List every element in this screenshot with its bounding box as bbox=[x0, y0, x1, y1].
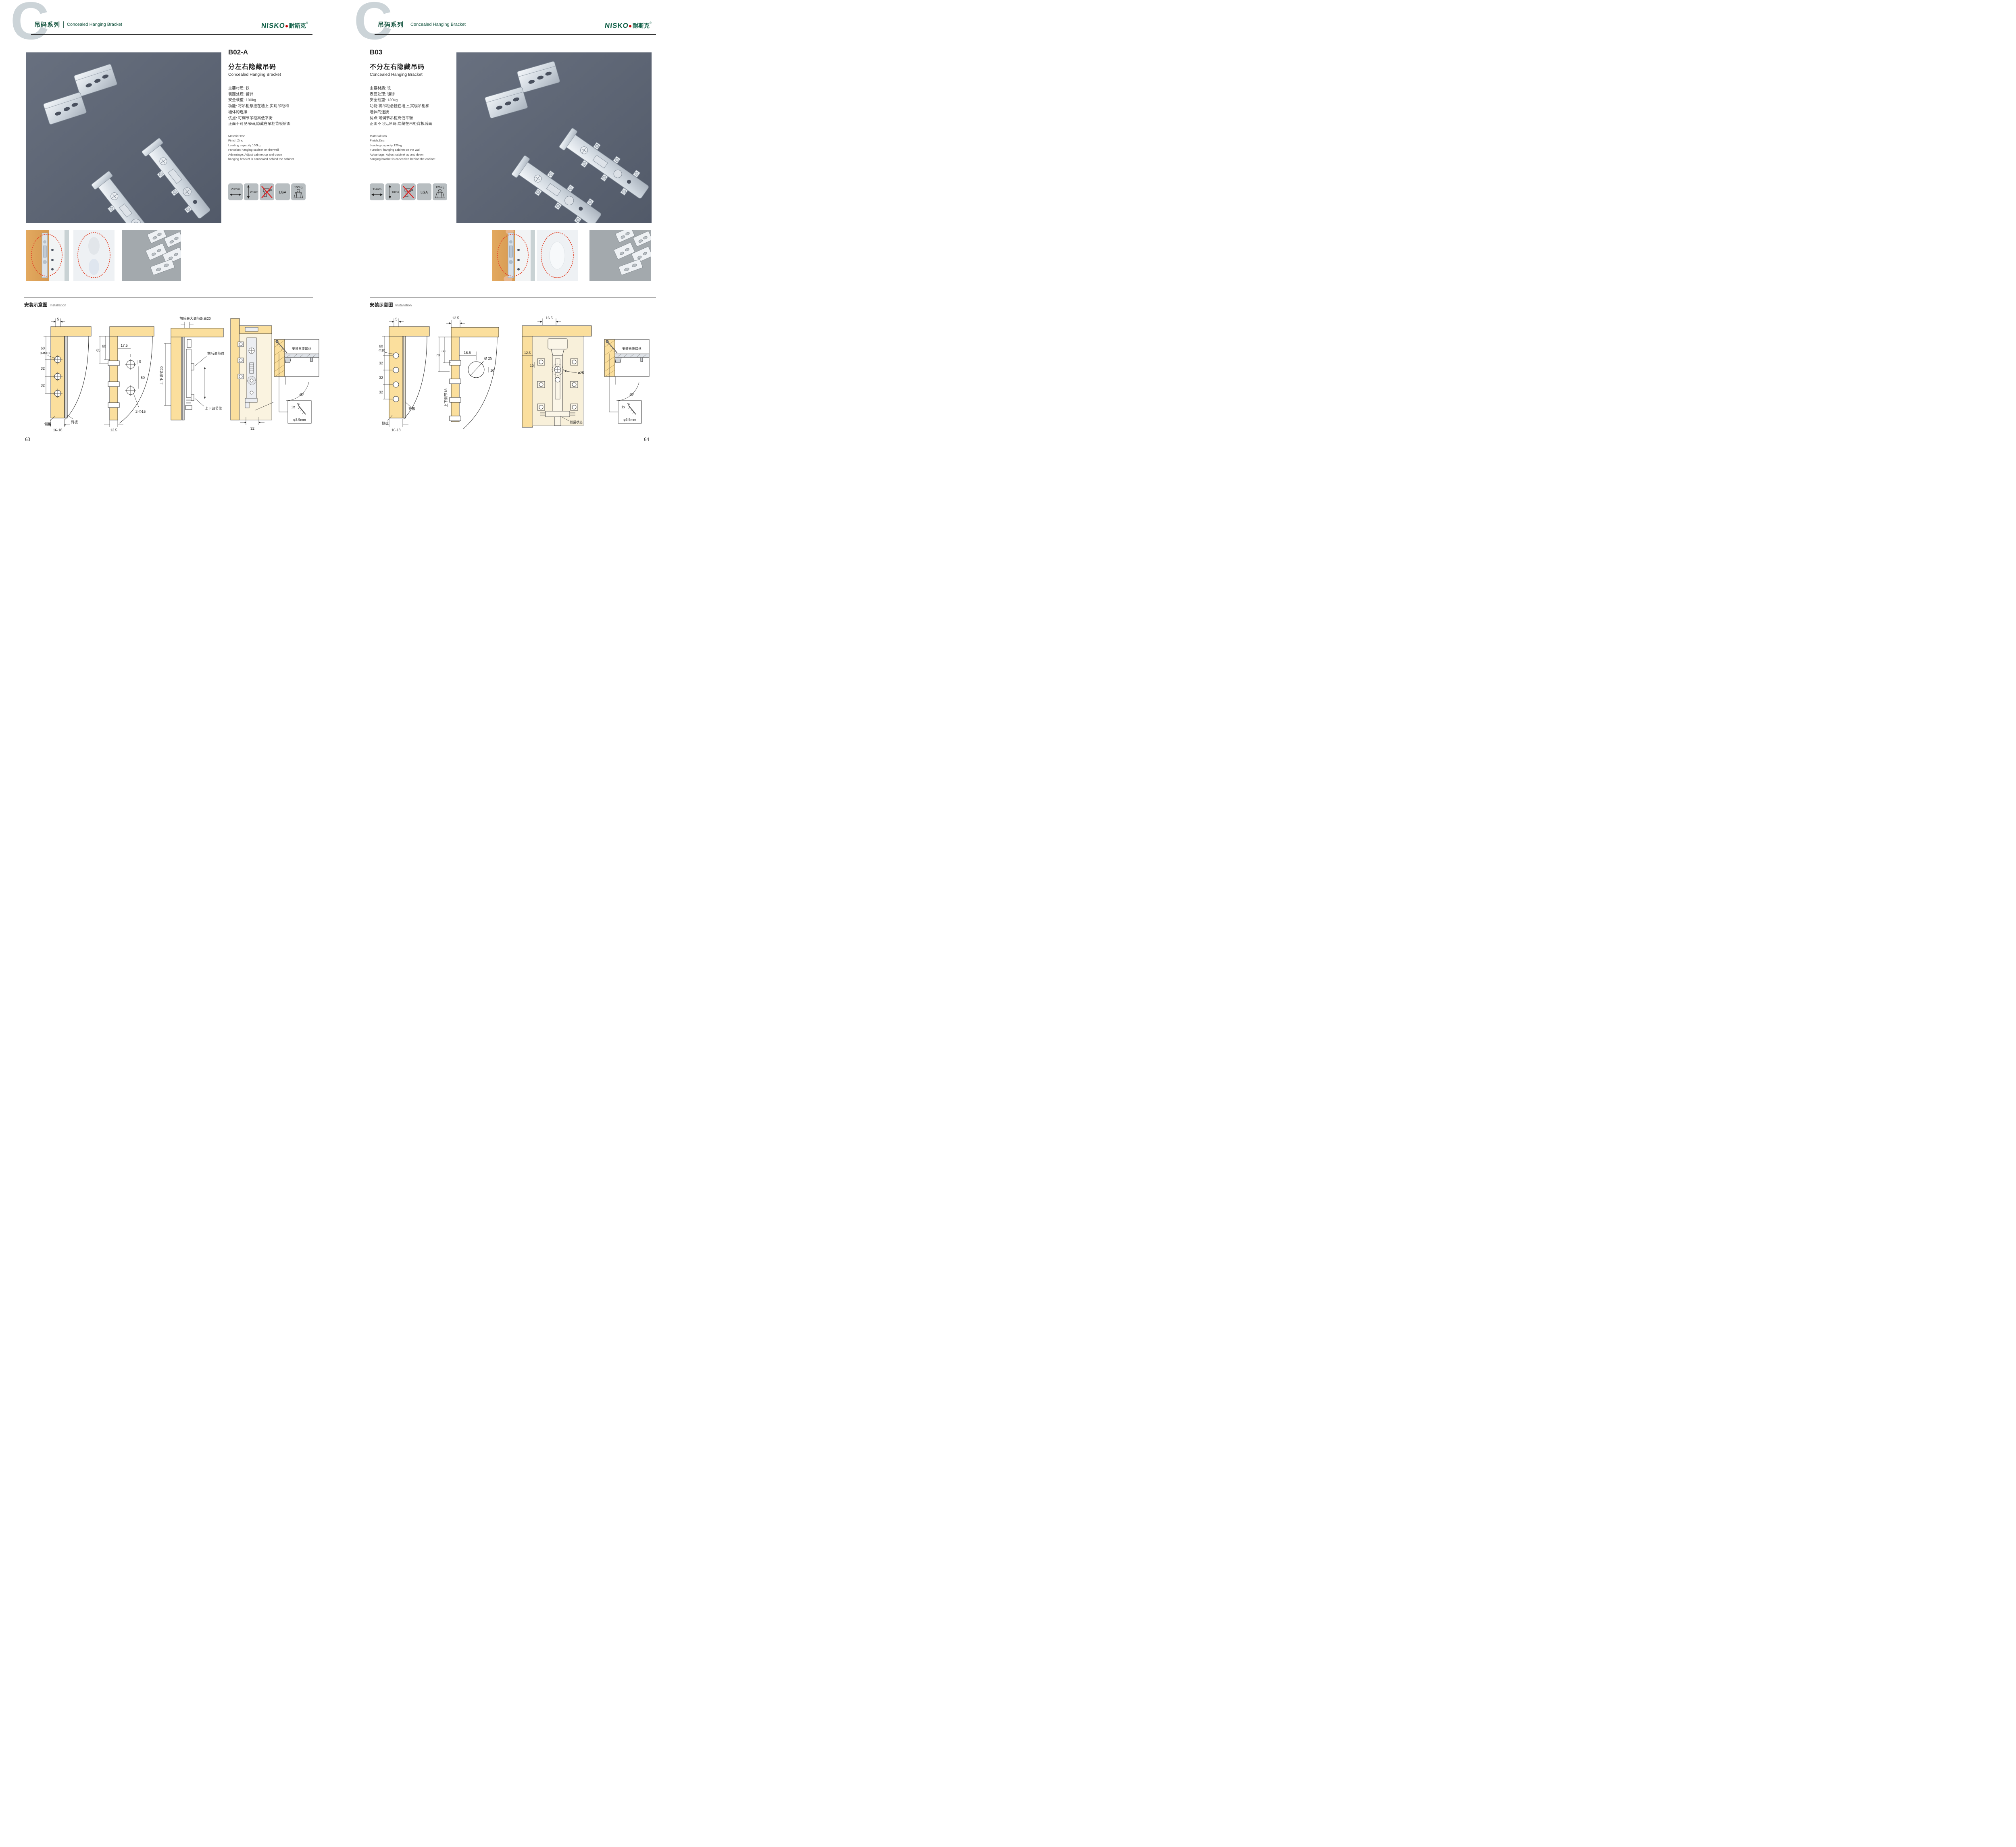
svg-text:60: 60 bbox=[102, 344, 106, 348]
svg-text:32: 32 bbox=[250, 426, 254, 431]
spec-line: Material:Iron bbox=[228, 134, 317, 138]
svg-text:φ3.5mm: φ3.5mm bbox=[293, 418, 306, 422]
spec-line: 正面不可见吊码,隐藏在吊柜背板后面 bbox=[370, 121, 458, 127]
thumb-installed-photo bbox=[492, 230, 535, 281]
spec-line: hanging bracket is concealed behind the … bbox=[370, 157, 458, 161]
svg-text:12.5: 12.5 bbox=[452, 316, 459, 320]
product-title-en: Concealed Hanging Bracket bbox=[370, 72, 458, 77]
series-title-en: Concealed Hanging Bracket bbox=[410, 22, 466, 27]
brand-dot-icon bbox=[285, 25, 288, 27]
no-drill-icon bbox=[401, 183, 416, 200]
installation-heading: 安装示意图 Installation bbox=[370, 302, 412, 308]
registered-mark: ® bbox=[306, 22, 308, 25]
svg-text:1x: 1x bbox=[291, 405, 295, 409]
svg-text:LGA: LGA bbox=[279, 190, 286, 194]
svg-text:70: 70 bbox=[436, 353, 440, 357]
installation-title-zh: 安装示意图 bbox=[370, 302, 393, 308]
width-icon: 15mm bbox=[370, 183, 384, 200]
spec-line: Material:Iron bbox=[370, 134, 458, 138]
svg-text:上下调节20: 上下调节20 bbox=[160, 366, 164, 385]
header-rule bbox=[375, 34, 656, 35]
diagram-mounted-front: 16.5 12.5 bbox=[511, 315, 594, 432]
spec-line: 安全载重: 100kg bbox=[228, 98, 317, 104]
svg-text:16.5: 16.5 bbox=[464, 351, 471, 355]
brand-zh: 耐斯克 bbox=[633, 23, 650, 29]
svg-text:17.5: 17.5 bbox=[121, 343, 128, 347]
cert-lga-icon: LGA bbox=[417, 183, 431, 200]
svg-text:18mm: 18mm bbox=[392, 190, 399, 194]
svg-text:100kg: 100kg bbox=[294, 185, 302, 189]
product-code: B03 bbox=[370, 48, 458, 56]
page-right: C 吊码系列 Concealed Hanging Bracket NISKO耐斯… bbox=[344, 0, 676, 462]
page-left: C 吊码系列 Concealed Hanging Bracket NISKO耐斯… bbox=[0, 0, 333, 462]
svg-text:前后最大调节距离20: 前后最大调节距离20 bbox=[179, 316, 211, 320]
header-divider bbox=[407, 21, 407, 28]
page-number: 64 bbox=[644, 436, 649, 443]
svg-text:5: 5 bbox=[395, 317, 397, 321]
section-rule bbox=[24, 297, 313, 297]
svg-text:16.5: 16.5 bbox=[546, 316, 553, 320]
product-title-zh: 分左右隐藏吊码 bbox=[228, 61, 317, 71]
spec-line: 表面处理: 镀锌 bbox=[370, 92, 458, 98]
width-icon: 20mm bbox=[228, 183, 243, 200]
svg-text:安装自攻螺丝: 安装自攻螺丝 bbox=[622, 347, 641, 351]
cert-lga-icon: LGA bbox=[275, 183, 290, 200]
brand-latin: NISKO bbox=[604, 22, 629, 30]
diagram-adjustment: 前后最大调节距离20 bbox=[160, 315, 226, 432]
series-title-en: Concealed Hanging Bracket bbox=[67, 22, 122, 27]
spec-line: Advantage: Adjust cabinet up and down bbox=[228, 152, 317, 157]
spec-line: Finish:Zinc bbox=[228, 138, 317, 143]
svg-text:20mm: 20mm bbox=[250, 190, 258, 194]
svg-text:2-Φ15: 2-Φ15 bbox=[135, 410, 146, 414]
spec-icons: 15mm 18mm bbox=[370, 183, 447, 200]
header-rule bbox=[31, 34, 312, 35]
spec-line: 墙体的连接 bbox=[370, 110, 458, 116]
page-header: 吊码系列 Concealed Hanging Bracket bbox=[34, 20, 122, 29]
product-info: B02-A 分左右隐藏吊码 Concealed Hanging Bracket … bbox=[228, 48, 317, 161]
installation-diagrams: 5 60 3-Φ10 32 32 侧板 背板 16-18 bbox=[31, 315, 318, 436]
thumb-plates-photo bbox=[589, 230, 651, 281]
spec-line: 优点:可调节吊柜高低平衡 bbox=[370, 116, 458, 122]
svg-text:60: 60 bbox=[442, 349, 446, 353]
thumb-installed-photo bbox=[26, 230, 69, 281]
header-divider bbox=[63, 21, 64, 28]
thumb-back-panel-photo bbox=[73, 230, 115, 281]
series-title-zh: 吊码系列 bbox=[34, 20, 60, 29]
no-drill-icon bbox=[260, 183, 274, 200]
svg-text:锁紧状态: 锁紧状态 bbox=[570, 420, 583, 424]
svg-text:φ3.5mm: φ3.5mm bbox=[623, 418, 636, 422]
spec-line: Advantage: Adjust cabinet up and down bbox=[370, 152, 458, 157]
specs-en: Material:Iron Finish:Zinc Loading capaci… bbox=[228, 134, 317, 161]
svg-text:Ø 25: Ø 25 bbox=[484, 356, 492, 360]
spec-line: Function: hanging cabinet on the wall bbox=[228, 148, 317, 152]
svg-text:16-18: 16-18 bbox=[391, 428, 400, 432]
spec-line: Function: hanging cabinet on the wall bbox=[370, 148, 458, 152]
spec-line: 墙体的连接 bbox=[228, 110, 317, 116]
svg-text:32: 32 bbox=[379, 390, 383, 394]
svg-text:65: 65 bbox=[96, 348, 100, 352]
product-code: B02-A bbox=[228, 48, 317, 56]
svg-text:ø25: ø25 bbox=[578, 371, 584, 375]
svg-text:32: 32 bbox=[379, 376, 383, 380]
series-title-zh: 吊码系列 bbox=[378, 20, 404, 29]
product-photo-b03 bbox=[456, 52, 652, 223]
svg-text:10: 10 bbox=[530, 364, 534, 368]
product-title-en: Concealed Hanging Bracket bbox=[228, 72, 317, 77]
specs-zh: 主要材质: 铁 表面处理: 镀锌 安全载重: 100kg 功能: 将吊柜悬挂在墙… bbox=[228, 86, 317, 127]
svg-text:120Kg: 120Kg bbox=[435, 185, 444, 189]
svg-text:3-Φ10: 3-Φ10 bbox=[40, 351, 50, 355]
spec-line: 优点: 可调节吊柜高低平衡 bbox=[228, 116, 317, 122]
spec-line: 功能: 将吊柜悬挂在墙上,实现吊柜和 bbox=[228, 104, 317, 110]
svg-text:16-18: 16-18 bbox=[53, 428, 62, 432]
svg-text:5: 5 bbox=[57, 317, 59, 321]
svg-text:45°: 45° bbox=[299, 393, 304, 397]
catalog-spread: C 吊码系列 Concealed Hanging Bracket NISKO耐斯… bbox=[0, 0, 676, 462]
brand-latin: NISKO bbox=[261, 22, 285, 30]
svg-text:背板: 背板 bbox=[408, 407, 416, 411]
spec-line: Loading capacity:120kg bbox=[370, 143, 458, 148]
installation-title-zh: 安装示意图 bbox=[24, 302, 48, 308]
svg-text:背板: 背板 bbox=[71, 420, 78, 424]
height-icon: 20mm bbox=[244, 183, 258, 200]
svg-text:32: 32 bbox=[379, 361, 383, 365]
svg-text:32: 32 bbox=[41, 366, 45, 370]
svg-text:侧板: 侧板 bbox=[382, 421, 389, 425]
brand-logo: NISKO耐斯克® bbox=[605, 22, 652, 30]
diagram-back-panel: 12.5 16.5 bbox=[434, 315, 503, 432]
spec-line: Finish:Zinc bbox=[370, 138, 458, 143]
svg-text:安装自攻螺丝: 安装自攻螺丝 bbox=[292, 347, 311, 351]
spec-line: 主要材质: 铁 bbox=[228, 86, 317, 92]
spec-line: hanging bracket is concealed behind the … bbox=[228, 157, 317, 161]
svg-text:侧板: 侧板 bbox=[44, 422, 52, 426]
registered-mark: ® bbox=[650, 22, 652, 25]
page-number: 63 bbox=[25, 436, 30, 443]
thumb-back-panel-photo bbox=[537, 230, 578, 281]
spec-line: 表面处理: 镀锌 bbox=[228, 92, 317, 98]
brand-dot-icon bbox=[629, 25, 631, 27]
diagram-side-panel: 5 60 Φ10 32 32 32 背板 侧板 16-18 bbox=[378, 315, 430, 432]
svg-text:上下调节18: 上下调节18 bbox=[444, 389, 448, 407]
svg-text:20mm: 20mm bbox=[231, 187, 240, 191]
svg-text:12.5: 12.5 bbox=[524, 351, 531, 355]
brand-logo: NISKO耐斯克® bbox=[261, 22, 308, 30]
svg-text:50: 50 bbox=[141, 376, 145, 380]
spec-icons: 20mm 20mm bbox=[228, 183, 306, 200]
product-photo-b02a bbox=[26, 52, 221, 223]
spec-line: 功能:将吊柜悬挂在墙上,实现吊柜和 bbox=[370, 104, 458, 110]
diagram-screw-inset: 安装自攻螺丝 45° 1x φ3.5mm bbox=[273, 315, 320, 432]
diagram-back-panel: 17.5 65 60 5 50 2-Φ15 12.5 bbox=[95, 315, 156, 432]
brand-zh: 耐斯克 bbox=[289, 23, 306, 29]
product-title-zh: 不分左右隐藏吊码 bbox=[370, 61, 458, 71]
spec-line: Loading capacity:100kg bbox=[228, 143, 317, 148]
diagram-screw-inset: 安装自攻螺丝 45° 1x φ3.5mm bbox=[604, 315, 650, 432]
svg-text:5: 5 bbox=[139, 360, 141, 364]
svg-text:上下调节位: 上下调节位 bbox=[205, 406, 222, 410]
installation-title-en: Installation bbox=[396, 303, 412, 307]
specs-zh: 主要材质: 铁 表面处理: 镀锌 安全载重: 120kg 功能:将吊柜悬挂在墙上… bbox=[370, 86, 458, 127]
diagram-side-panel: 5 60 3-Φ10 32 32 侧板 背板 16-18 bbox=[40, 315, 92, 432]
svg-text:15mm: 15mm bbox=[373, 187, 382, 191]
svg-text:1x: 1x bbox=[621, 405, 625, 409]
installation-heading: 安装示意图 Installation bbox=[24, 302, 66, 308]
installation-diagrams: 5 60 Φ10 32 32 32 背板 侧板 16-18 12.5 bbox=[372, 315, 662, 436]
diagram-mounted: 32 bbox=[228, 315, 273, 432]
load-capacity-icon: 100kg bbox=[291, 183, 306, 200]
height-icon: 18mm bbox=[385, 183, 400, 200]
specs-en: Material:Iron Finish:Zinc Loading capaci… bbox=[370, 134, 458, 161]
svg-text:12.5: 12.5 bbox=[110, 428, 117, 432]
spec-line: 主要材质: 铁 bbox=[370, 86, 458, 92]
svg-text:10: 10 bbox=[490, 368, 494, 372]
section-rule bbox=[370, 297, 656, 297]
svg-text:60: 60 bbox=[379, 344, 383, 348]
load-capacity-icon: 120Kg bbox=[433, 183, 447, 200]
svg-text:32: 32 bbox=[41, 383, 45, 387]
spec-line: 安全载重: 120kg bbox=[370, 98, 458, 104]
spec-line: 正面不可见吊码,隐藏在吊柜背板后面 bbox=[228, 121, 317, 127]
page-header: 吊码系列 Concealed Hanging Bracket bbox=[378, 20, 466, 29]
product-info: B03 不分左右隐藏吊码 Concealed Hanging Bracket 主… bbox=[370, 48, 458, 161]
svg-text:60: 60 bbox=[41, 346, 45, 350]
svg-text:LGA: LGA bbox=[421, 190, 428, 194]
thumb-plates-photo bbox=[122, 230, 181, 281]
svg-text:前后调节位: 前后调节位 bbox=[207, 352, 225, 356]
installation-title-en: Installation bbox=[50, 303, 67, 307]
svg-text:45°: 45° bbox=[629, 393, 634, 397]
svg-text:Φ10: Φ10 bbox=[379, 348, 385, 352]
